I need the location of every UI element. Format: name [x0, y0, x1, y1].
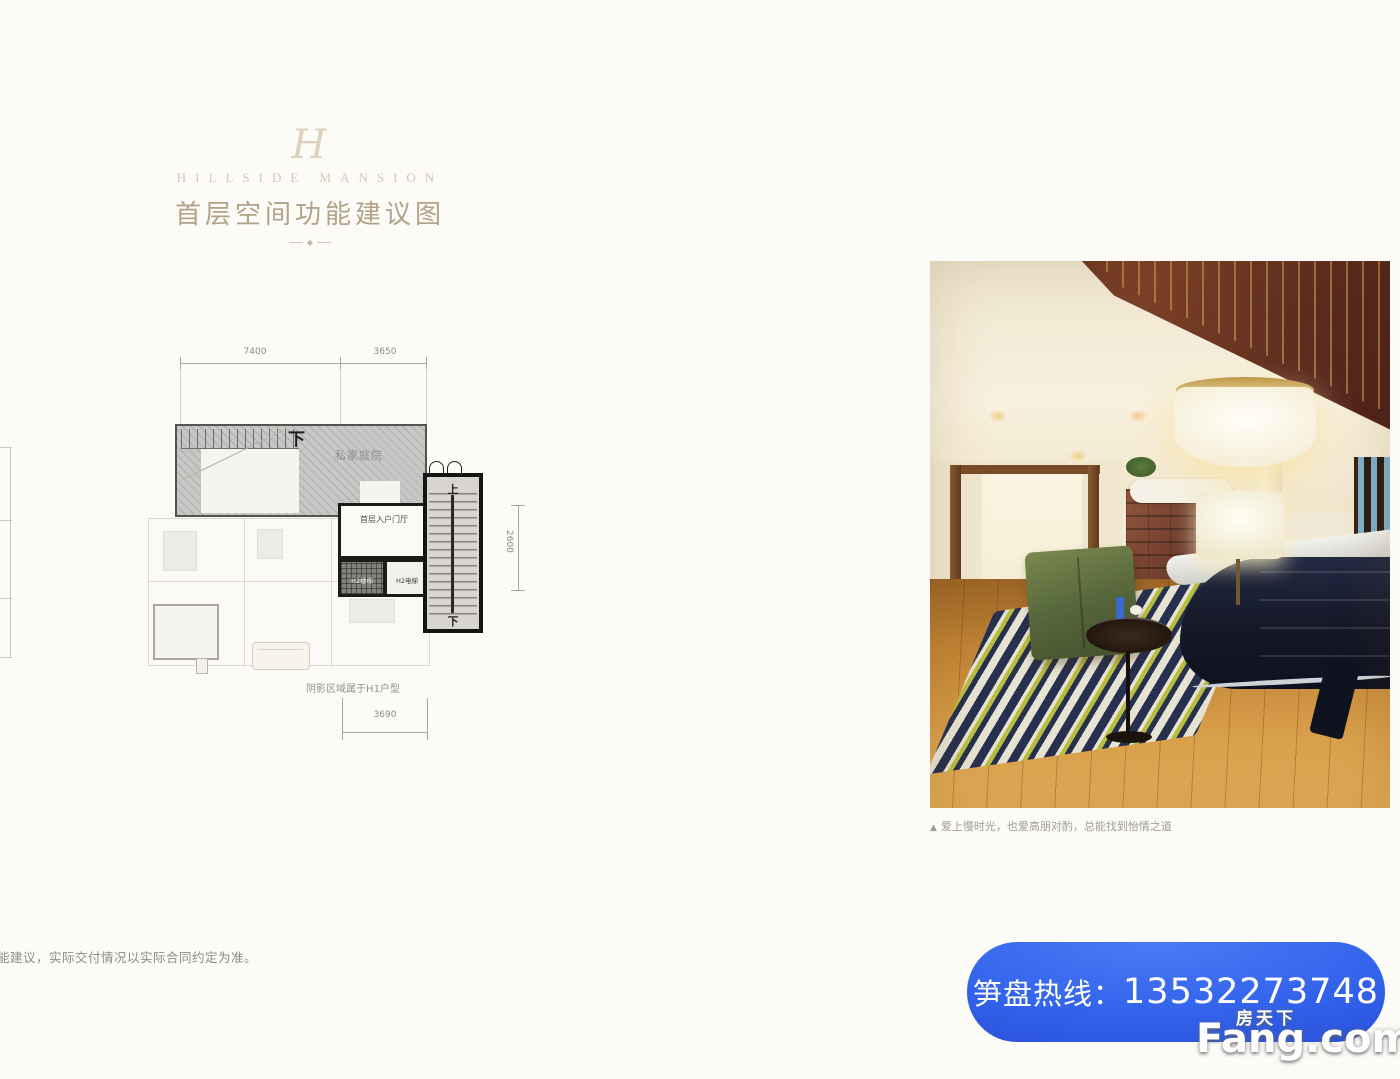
elevator-label: H2电梯	[387, 575, 427, 585]
stairwell: 上 下	[423, 473, 483, 633]
ghost-furniture	[257, 529, 283, 559]
entrance-hall: 首层入户门厅	[338, 503, 430, 559]
stair-shaft-label: H2楼梯	[341, 575, 383, 585]
promo-page: H HILLSIDE MANSION 首层空间功能建议图 ◆ 7400 3650	[0, 0, 1400, 1079]
dim-extension	[180, 369, 181, 424]
floor-plan: 7400 3650 下 私家庭院 首层入	[130, 330, 540, 750]
dim-top-left: 7400	[215, 347, 295, 357]
plan-note: 阴影区域属于H1户型	[248, 680, 458, 695]
page-title: 首层空间功能建议图	[135, 194, 485, 231]
dim-tick	[511, 590, 525, 591]
dim-line-bottom	[342, 732, 428, 733]
ghost-furniture	[349, 599, 395, 623]
door-swing-icon	[429, 461, 444, 473]
dim-line-top	[180, 363, 427, 364]
stair-direction-down-label: 下	[288, 425, 314, 450]
dim-tick	[426, 357, 427, 369]
dim-tick	[180, 357, 181, 369]
dim-extension	[340, 369, 341, 424]
ghost-furniture	[163, 531, 197, 571]
stair-direction-down-label: 下	[427, 613, 479, 629]
dim-extension	[427, 698, 428, 740]
ghost-wall	[244, 519, 245, 667]
dim-tick	[340, 357, 341, 369]
brand-monogram: H	[250, 122, 370, 168]
photo-vignette	[930, 261, 1390, 808]
interior-photo	[930, 261, 1390, 808]
dim-top-right: 3650	[355, 347, 415, 357]
hotline-label: 笋盘热线：	[973, 971, 1123, 1013]
ghost-annex-stub	[196, 658, 208, 674]
ghost-annex-room	[153, 604, 219, 660]
brand-name: HILLSIDE MANSION	[150, 170, 470, 186]
dim-right: 2600	[504, 530, 514, 553]
dim-line-right	[518, 505, 519, 590]
dim-bottom: 3690	[355, 710, 415, 720]
courtyard-label: 私家庭院	[335, 447, 415, 463]
caption-triangle-icon: ▲	[930, 823, 937, 833]
ghost-wall	[331, 519, 332, 667]
stair-rail	[451, 495, 454, 613]
entrance-hall-label: 首层入户门厅	[341, 514, 427, 525]
door-swing-icon	[447, 461, 462, 473]
watermark-en: Fang.com	[1196, 1016, 1400, 1062]
ornament-icon: ◆	[270, 238, 350, 247]
dim-tick	[511, 505, 525, 506]
stair-direction-up-label: 上	[427, 481, 479, 497]
stair-shaft-room: H2楼梯	[338, 559, 386, 597]
dim-extension	[342, 698, 343, 740]
courtyard-inner	[201, 449, 299, 513]
sofa-sketch-icon	[252, 642, 310, 670]
fang-watermark: 房天下 Fang.com	[1196, 1004, 1392, 1074]
caption-text: 爱上慢时光，也爱高朋对酌，总能找到怡情之道	[941, 820, 1172, 833]
photo-caption: ▲爱上慢时光，也爱高朋对酌，总能找到怡情之道	[930, 818, 1392, 834]
edge-dim-tick	[0, 657, 12, 658]
disclaimer-text: 功能建议，实际交付情况以实际合同约定为准。	[0, 947, 324, 966]
edge-dim-line	[10, 447, 11, 657]
